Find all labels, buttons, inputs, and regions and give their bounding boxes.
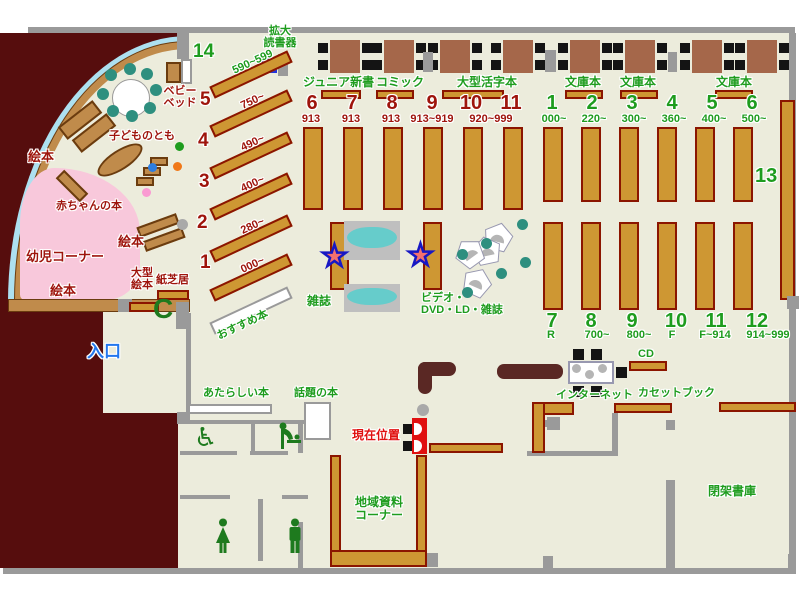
shelf-number: 10 — [449, 93, 493, 114]
shelf-number: 8 — [370, 93, 414, 114]
toilet-wall-h4 — [282, 495, 308, 499]
reading-table — [692, 40, 722, 73]
magazine-rack-curve — [347, 288, 397, 305]
wall-stub-5 — [788, 554, 796, 568]
bookshelf — [619, 127, 639, 202]
c-shaped-seat: C — [153, 294, 173, 323]
shelf-number: 4 — [198, 131, 209, 151]
cassette-books-shelf — [614, 403, 672, 413]
shelf-range: 500~ — [724, 114, 784, 126]
shelf-number: 1 — [200, 253, 211, 273]
entrance-label: 入口 — [87, 343, 121, 361]
toy-dot — [142, 188, 151, 197]
internet-label: インターネット — [556, 390, 633, 402]
closed-stacks-label: 閉架書庫 — [708, 485, 756, 498]
booth-chair — [457, 249, 468, 260]
cd-shelf — [629, 361, 667, 371]
baby-bed — [166, 62, 181, 83]
bookshelf — [733, 222, 753, 310]
wall-bottom — [3, 568, 796, 574]
section-bunko-1: 文庫本 — [565, 76, 601, 89]
shelf-number: 9 — [410, 93, 454, 114]
booth-chair — [520, 257, 531, 268]
bookshelf — [695, 222, 715, 310]
booth-chair — [481, 238, 492, 249]
wall-children-top-divider — [177, 33, 189, 59]
library-floor-map: 拡大読書器 ジュニア新書 コミック 大型活字本 文庫本 文庫本 文庫本 6 7 … — [0, 0, 800, 600]
infant-corner-label: 幼児コーナー — [26, 250, 104, 264]
wall-stub-13 — [787, 296, 799, 309]
table-divider — [423, 52, 433, 72]
picture-books-label: 絵本 — [50, 284, 76, 298]
baby-bed-label: ベビーベッド — [160, 86, 200, 109]
section-bunko-3: 文庫本 — [716, 76, 752, 89]
shelf-range: F~914 — [685, 330, 745, 342]
shelf-number: 5 — [200, 90, 211, 110]
star-marker-icon: ★ — [321, 242, 348, 272]
section-comic: コミック — [376, 76, 424, 89]
local-materials-label: 地域資料コーナー — [340, 496, 418, 521]
bookshelf — [695, 127, 715, 202]
wall-stub-4 — [666, 556, 675, 568]
exterior-left — [0, 300, 103, 568]
shelf-number: 2 — [570, 93, 614, 114]
magazine-rack-curve — [347, 227, 397, 248]
bookshelf — [503, 127, 523, 210]
new-books-label: あたらしい本 — [203, 388, 269, 400]
stacks-wall-v-bottom — [666, 480, 675, 564]
baby-bed-mat — [181, 59, 192, 84]
reading-table — [330, 40, 360, 73]
wall-shelf — [719, 402, 796, 412]
reading-table — [503, 40, 533, 73]
counter-shelf — [532, 402, 545, 453]
man-icon — [286, 518, 304, 554]
wall-top — [28, 27, 795, 33]
reading-table — [625, 40, 655, 73]
exterior-below-entrance — [103, 413, 178, 568]
bookshelf-13 — [780, 100, 795, 300]
internet-terminal — [598, 364, 607, 373]
reading-table — [747, 40, 777, 73]
service-counter — [497, 364, 563, 379]
toy-dot — [173, 162, 182, 171]
shelf-number: 10 — [654, 311, 698, 332]
shelf-number: 3 — [610, 93, 654, 114]
topic-books-label: 話題の本 — [294, 388, 338, 400]
reading-table — [440, 40, 470, 73]
shelf-number: 5 — [690, 93, 734, 114]
bookshelf — [543, 127, 563, 202]
wall-stub-3 — [543, 556, 553, 568]
shelf-number: 11 — [489, 93, 533, 114]
pillar-dot — [177, 219, 188, 230]
magazines-label: 雑誌 — [307, 295, 331, 308]
shelf-number: 2 — [197, 213, 208, 233]
current-location-label: 現在位置 — [352, 429, 400, 442]
shelf-range: 914~999 — [738, 330, 798, 342]
baby-changing-icon — [277, 421, 303, 453]
wall-vestibule-right — [186, 313, 191, 413]
counter-shelf — [429, 443, 503, 453]
picture-books-label: 絵本 — [28, 150, 54, 164]
shelf-number: 6 — [730, 93, 774, 114]
bookshelf — [303, 127, 323, 210]
shelf-number: 4 — [650, 93, 694, 114]
section-bunko-2: 文庫本 — [620, 76, 656, 89]
woman-icon — [214, 518, 232, 554]
toilet-wall-v2 — [258, 499, 263, 561]
internet-terminal — [572, 364, 581, 373]
toilet-wall-h3 — [180, 495, 230, 499]
shelf-number-13: 13 — [755, 166, 777, 187]
stacks-wall-v-top — [612, 413, 618, 456]
bookshelf — [581, 127, 601, 202]
shelf-range: 920~999 — [461, 114, 521, 126]
shelf-number: 3 — [199, 172, 210, 192]
booth-chair — [462, 287, 473, 298]
bookshelf — [423, 127, 443, 210]
shelf-number: 6 — [290, 93, 334, 114]
toilet-wall-v1 — [251, 423, 255, 451]
reading-table — [570, 40, 600, 73]
internet-terminal — [585, 370, 594, 379]
bookshelf — [383, 127, 403, 210]
kodomo-no-tomo-label: 子どものとも — [109, 131, 175, 143]
picture-books-label: 絵本 — [118, 235, 144, 249]
bookshelf — [581, 222, 601, 310]
reading-table — [384, 40, 414, 73]
wheelchair-icon: ♿ — [194, 423, 217, 453]
table-divider — [545, 50, 556, 72]
pillar-dot — [417, 404, 429, 416]
kamishibai-label: 紙芝居 — [156, 275, 189, 287]
local-materials-shelf-bottom — [330, 550, 427, 567]
bookshelf — [343, 127, 363, 210]
bookshelf — [619, 222, 639, 310]
bookshelf — [733, 127, 753, 202]
bookshelf — [657, 222, 677, 310]
baby-books-label: 赤ちゃんの本 — [56, 201, 122, 213]
kids-step-shelf — [136, 177, 154, 186]
toy-dot — [148, 163, 157, 172]
shelf-number: 14 — [193, 42, 214, 62]
bookshelf — [657, 127, 677, 202]
section-large-print: 大型活字本 — [457, 76, 517, 89]
booth-chair — [517, 219, 528, 230]
bookshelf — [543, 222, 563, 310]
cd-label: CD — [638, 349, 654, 361]
service-counter — [418, 362, 432, 394]
section-junior-shinsho: ジュニア新書 — [303, 76, 374, 89]
wall-stub-6 — [427, 553, 438, 567]
topic-books-shelf — [304, 402, 331, 440]
booth-chair — [496, 268, 507, 279]
counter-pillar — [547, 417, 560, 430]
bookshelf — [463, 127, 483, 210]
cassette-books-label: カセットブック — [638, 388, 715, 400]
table-divider — [668, 52, 677, 72]
wall-stub-2 — [666, 420, 675, 430]
toy-dot — [175, 142, 184, 151]
shelf-number: 1 — [530, 93, 574, 114]
shelf-number: 7 — [330, 93, 374, 114]
star-marker-icon: ★ — [407, 241, 434, 271]
new-books-shelf — [188, 404, 272, 414]
shelf-range: 913~919 — [402, 114, 462, 126]
